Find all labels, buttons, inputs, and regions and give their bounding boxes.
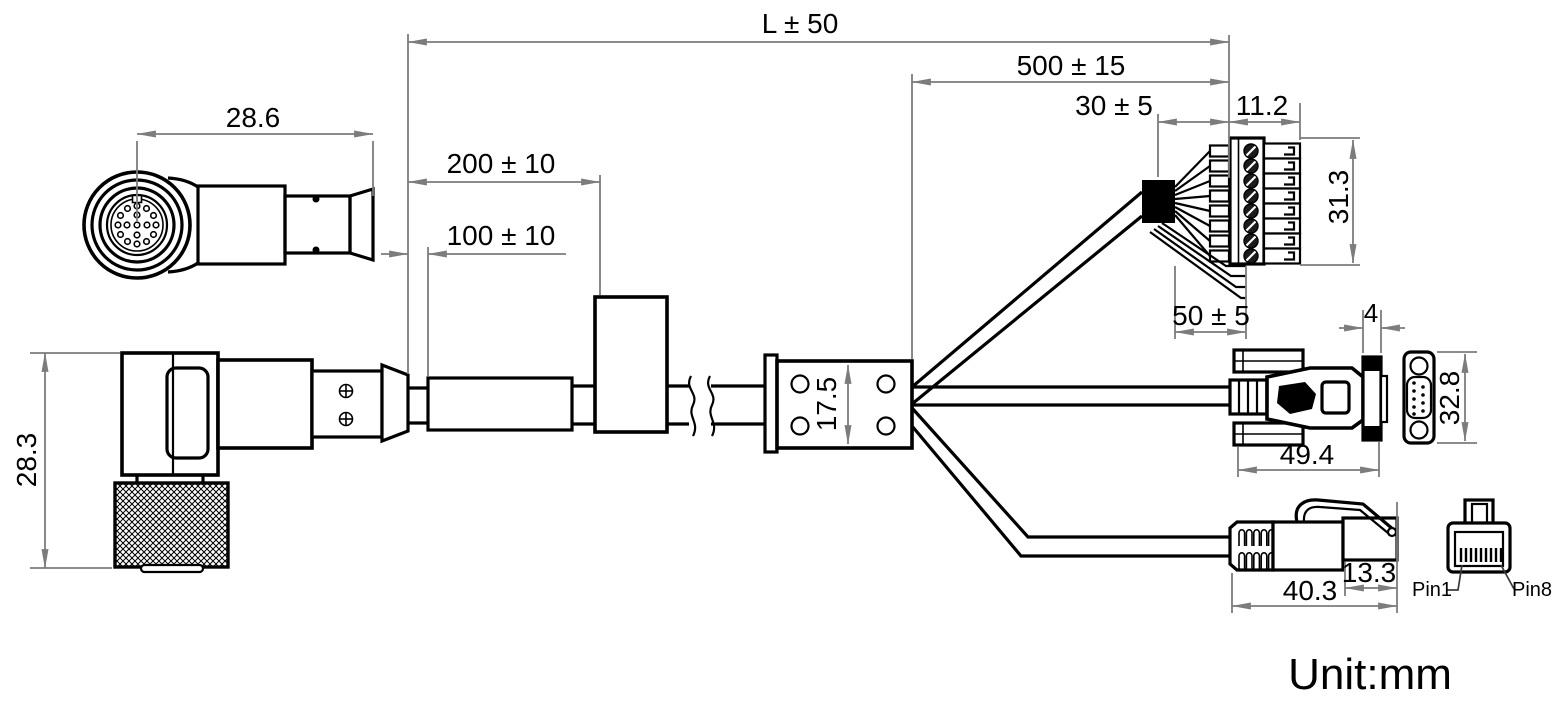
cable-assembly-drawing: Pin1 Pin8 L ± 50 [0,0,1559,722]
dim-circular-length-label: 28.6 [226,102,281,133]
dim-overall-length-label: L ± 50 [762,8,839,39]
pin8-label: Pin8 [1512,579,1552,601]
dim-breakout-strip-label: 30 ± 5 [1075,90,1153,121]
terminal-block-branch [1142,138,1300,298]
hood-window [1322,382,1349,413]
dim-terminal-width-label: 11.2 [1236,90,1288,121]
rj45-connector-face-view: Pin1 Pin8 [1412,500,1552,601]
dim-dsub-flange: 4 [1339,298,1405,328]
circular-connector-top-view [84,172,373,278]
dim-junction-height-label: 17.5 [811,377,842,432]
dim-dsub-length-label: 49.4 [1280,439,1335,470]
dim-label-position-label: 100 ± 10 [447,220,556,251]
dim-rj45-plug-label: 13.3 [1342,557,1397,588]
wire-ferrules [1210,146,1229,262]
dim-overall-length: L ± 50 [408,8,1229,42]
dim-ferrite-position: 200 ± 10 [408,148,600,182]
ferrite-core [595,297,667,432]
cable-break-symbol [689,376,714,436]
pin1-label: Pin1 [1412,579,1452,601]
unit-note: Unit:mm [1288,650,1452,699]
strain-relief-cap [350,189,373,260]
dim-circular-connector-length: 28.6 [137,102,373,134]
dsub-connector-face-view [1404,352,1434,443]
heatshrink-sleeve [1142,180,1175,223]
dim-dsub-height: 32.8 [1434,354,1465,441]
connector-body [198,186,285,264]
technical-drawing-canvas: Pin1 Pin8 L ± 50 [0,0,1559,722]
right-angle-connector-side-view [115,353,428,572]
dim-terminal-height-label: 31.3 [1323,170,1354,225]
rj45-face-body [1448,523,1510,572]
mounting-hole-bottom [1411,422,1428,439]
rj45-body [1273,522,1343,570]
terminal-contacts [1264,144,1300,264]
dim-rj45-plug: 13.3 [1342,557,1397,588]
dsub-connector-side-view [1230,350,1387,445]
dim-breakout-length: 500 ± 15 [912,50,1229,82]
breakout-branches [912,192,1230,556]
dim-breakout-strip: 30 ± 5 [1075,90,1229,122]
dim-ferrite-position-label: 200 ± 10 [447,148,556,179]
connector-neck [285,196,350,253]
knurled-coupling-nut [115,483,228,567]
connector-rear-body [218,360,312,448]
dim-connector-height-label: 28.3 [11,433,42,488]
dim-terminal-height: 31.3 [1323,140,1354,263]
dim-rj45-length-label: 40.3 [1283,575,1338,606]
cable-boot [312,371,382,437]
dim-wire-strip: 50 ± 5 [1172,300,1250,332]
dim-dsub-height-label: 32.8 [1434,371,1465,426]
cable-label-sleeve [428,378,572,430]
mounting-hole-top [1411,358,1428,375]
boot-taper [382,365,408,441]
dim-breakout-length-label: 500 ± 15 [1017,50,1126,81]
dim-connector-height: 28.3 [11,353,45,568]
dim-wire-strip-label: 50 ± 5 [1172,300,1250,331]
dim-dsub-flange-label: 4 [1364,298,1378,328]
rj45-contacts [1461,548,1501,562]
dsub-d-shell [1407,377,1431,418]
dim-terminal-width: 11.2 [1229,90,1300,122]
